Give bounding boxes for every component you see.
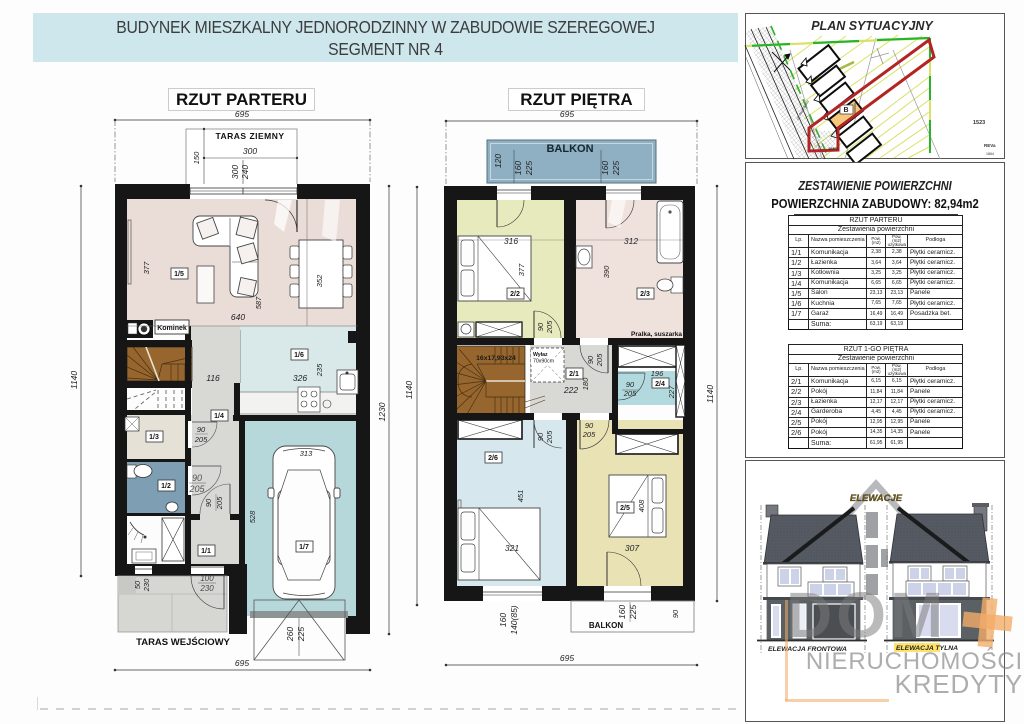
svg-text:695: 695 [235, 109, 249, 119]
svg-text:2/6: 2/6 [488, 455, 498, 462]
svg-text:160: 160 [498, 613, 508, 627]
svg-text:377: 377 [142, 261, 151, 274]
svg-text:B: B [843, 107, 848, 114]
svg-text:180: 180 [581, 377, 590, 390]
svg-text:408: 408 [637, 499, 646, 512]
svg-text:307: 307 [625, 543, 639, 553]
svg-text:70x90cm: 70x90cm [533, 359, 554, 365]
svg-text:1523: 1523 [973, 120, 985, 126]
svg-text:REVa: REVa [984, 143, 996, 148]
svg-text:205: 205 [188, 484, 205, 494]
svg-text:2/3: 2/3 [640, 291, 650, 298]
svg-text:312: 312 [624, 236, 638, 246]
svg-text:205: 205 [545, 320, 554, 334]
svg-text:50: 50 [133, 580, 142, 589]
svg-text:230: 230 [199, 584, 214, 593]
svg-text:BALKON: BALKON [589, 621, 623, 630]
svg-text:205: 205 [545, 430, 554, 444]
svg-text:240: 240 [240, 165, 250, 180]
svg-text:100: 100 [200, 574, 214, 583]
svg-text:313: 313 [300, 449, 313, 458]
svg-text:587: 587 [254, 296, 263, 309]
svg-text:451: 451 [516, 490, 525, 503]
svg-text:1/3: 1/3 [149, 434, 159, 441]
svg-text:300: 300 [243, 146, 257, 156]
svg-text:235: 235 [315, 363, 324, 377]
svg-text:PLAN SYTUACYJNY: PLAN SYTUACYJNY [811, 19, 934, 33]
svg-text:225: 225 [524, 161, 534, 176]
svg-text:90: 90 [536, 432, 545, 441]
svg-text:2/2: 2/2 [510, 291, 520, 298]
svg-text:90: 90 [536, 322, 545, 331]
svg-text:1230: 1230 [377, 402, 387, 421]
svg-text:BALKON: BALKON [546, 143, 593, 155]
svg-text:205: 205 [194, 435, 208, 444]
svg-text:2/5: 2/5 [620, 505, 630, 512]
svg-text:196: 196 [651, 369, 664, 378]
svg-text:Wyłaz: Wyłaz [533, 352, 548, 358]
svg-text:528: 528 [248, 510, 257, 523]
svg-text:377: 377 [517, 263, 526, 276]
svg-text:185/3: 185/3 [828, 146, 839, 151]
svg-text:90: 90 [626, 380, 635, 389]
svg-text:260: 260 [285, 627, 295, 642]
svg-text:205: 205 [595, 353, 604, 367]
svg-text:352: 352 [315, 274, 324, 287]
svg-text:160: 160 [513, 161, 523, 175]
svg-text:695: 695 [560, 653, 574, 663]
svg-text:695: 695 [235, 658, 249, 668]
svg-text:140(85): 140(85) [509, 605, 519, 634]
svg-text:321: 321 [505, 543, 519, 553]
svg-text:1/6: 1/6 [294, 352, 304, 359]
svg-text:90: 90 [204, 498, 213, 507]
svg-text:90: 90 [671, 609, 680, 618]
svg-text:Pralka, suszarka: Pralka, suszarka [631, 331, 682, 338]
svg-text:TARAS ZIEMNY: TARAS ZIEMNY [215, 131, 284, 141]
svg-text:1140: 1140 [705, 385, 715, 404]
svg-text:160: 160 [617, 605, 627, 619]
svg-text:390: 390 [602, 265, 611, 278]
svg-text:225: 225 [628, 605, 638, 620]
svg-text:205: 205 [623, 389, 637, 398]
svg-text:ELEWACJE: ELEWACJE [850, 493, 903, 504]
svg-text:116: 116 [206, 373, 220, 383]
svg-text:225: 225 [296, 627, 306, 642]
svg-text:120: 120 [493, 154, 503, 168]
svg-text:225: 225 [611, 161, 621, 176]
svg-text:222: 222 [563, 385, 578, 395]
svg-text:1/1: 1/1 [201, 548, 211, 555]
svg-text:227: 227 [667, 385, 676, 399]
svg-text:150: 150 [192, 151, 201, 164]
svg-text:1/5: 1/5 [174, 271, 184, 278]
svg-text:160: 160 [600, 161, 610, 175]
svg-text:1140: 1140 [404, 381, 414, 400]
svg-text:90: 90 [192, 473, 202, 483]
svg-text:2/4: 2/4 [655, 381, 665, 388]
svg-text:205: 205 [215, 496, 224, 510]
svg-text:695: 695 [560, 109, 574, 119]
svg-text:316: 316 [504, 236, 518, 246]
svg-text:1864: 1864 [986, 152, 994, 156]
svg-text:1/2: 1/2 [161, 483, 171, 490]
svg-text:1140: 1140 [69, 371, 79, 390]
svg-text:90: 90 [586, 355, 595, 364]
svg-text:90: 90 [197, 425, 206, 434]
svg-text:TARAS WEJŚCIOWY: TARAS WEJŚCIOWY [136, 636, 230, 648]
svg-text:1/4: 1/4 [214, 413, 224, 420]
svg-text:16x17,93x24: 16x17,93x24 [476, 355, 516, 362]
svg-text:300: 300 [230, 165, 240, 179]
svg-text:1/7: 1/7 [299, 544, 309, 551]
svg-text:90: 90 [585, 421, 594, 430]
svg-text:205: 205 [582, 430, 596, 439]
svg-text:640: 640 [231, 312, 245, 322]
svg-text:326: 326 [293, 373, 307, 383]
svg-text:230: 230 [142, 578, 151, 592]
svg-text:2/1: 2/1 [569, 371, 579, 378]
